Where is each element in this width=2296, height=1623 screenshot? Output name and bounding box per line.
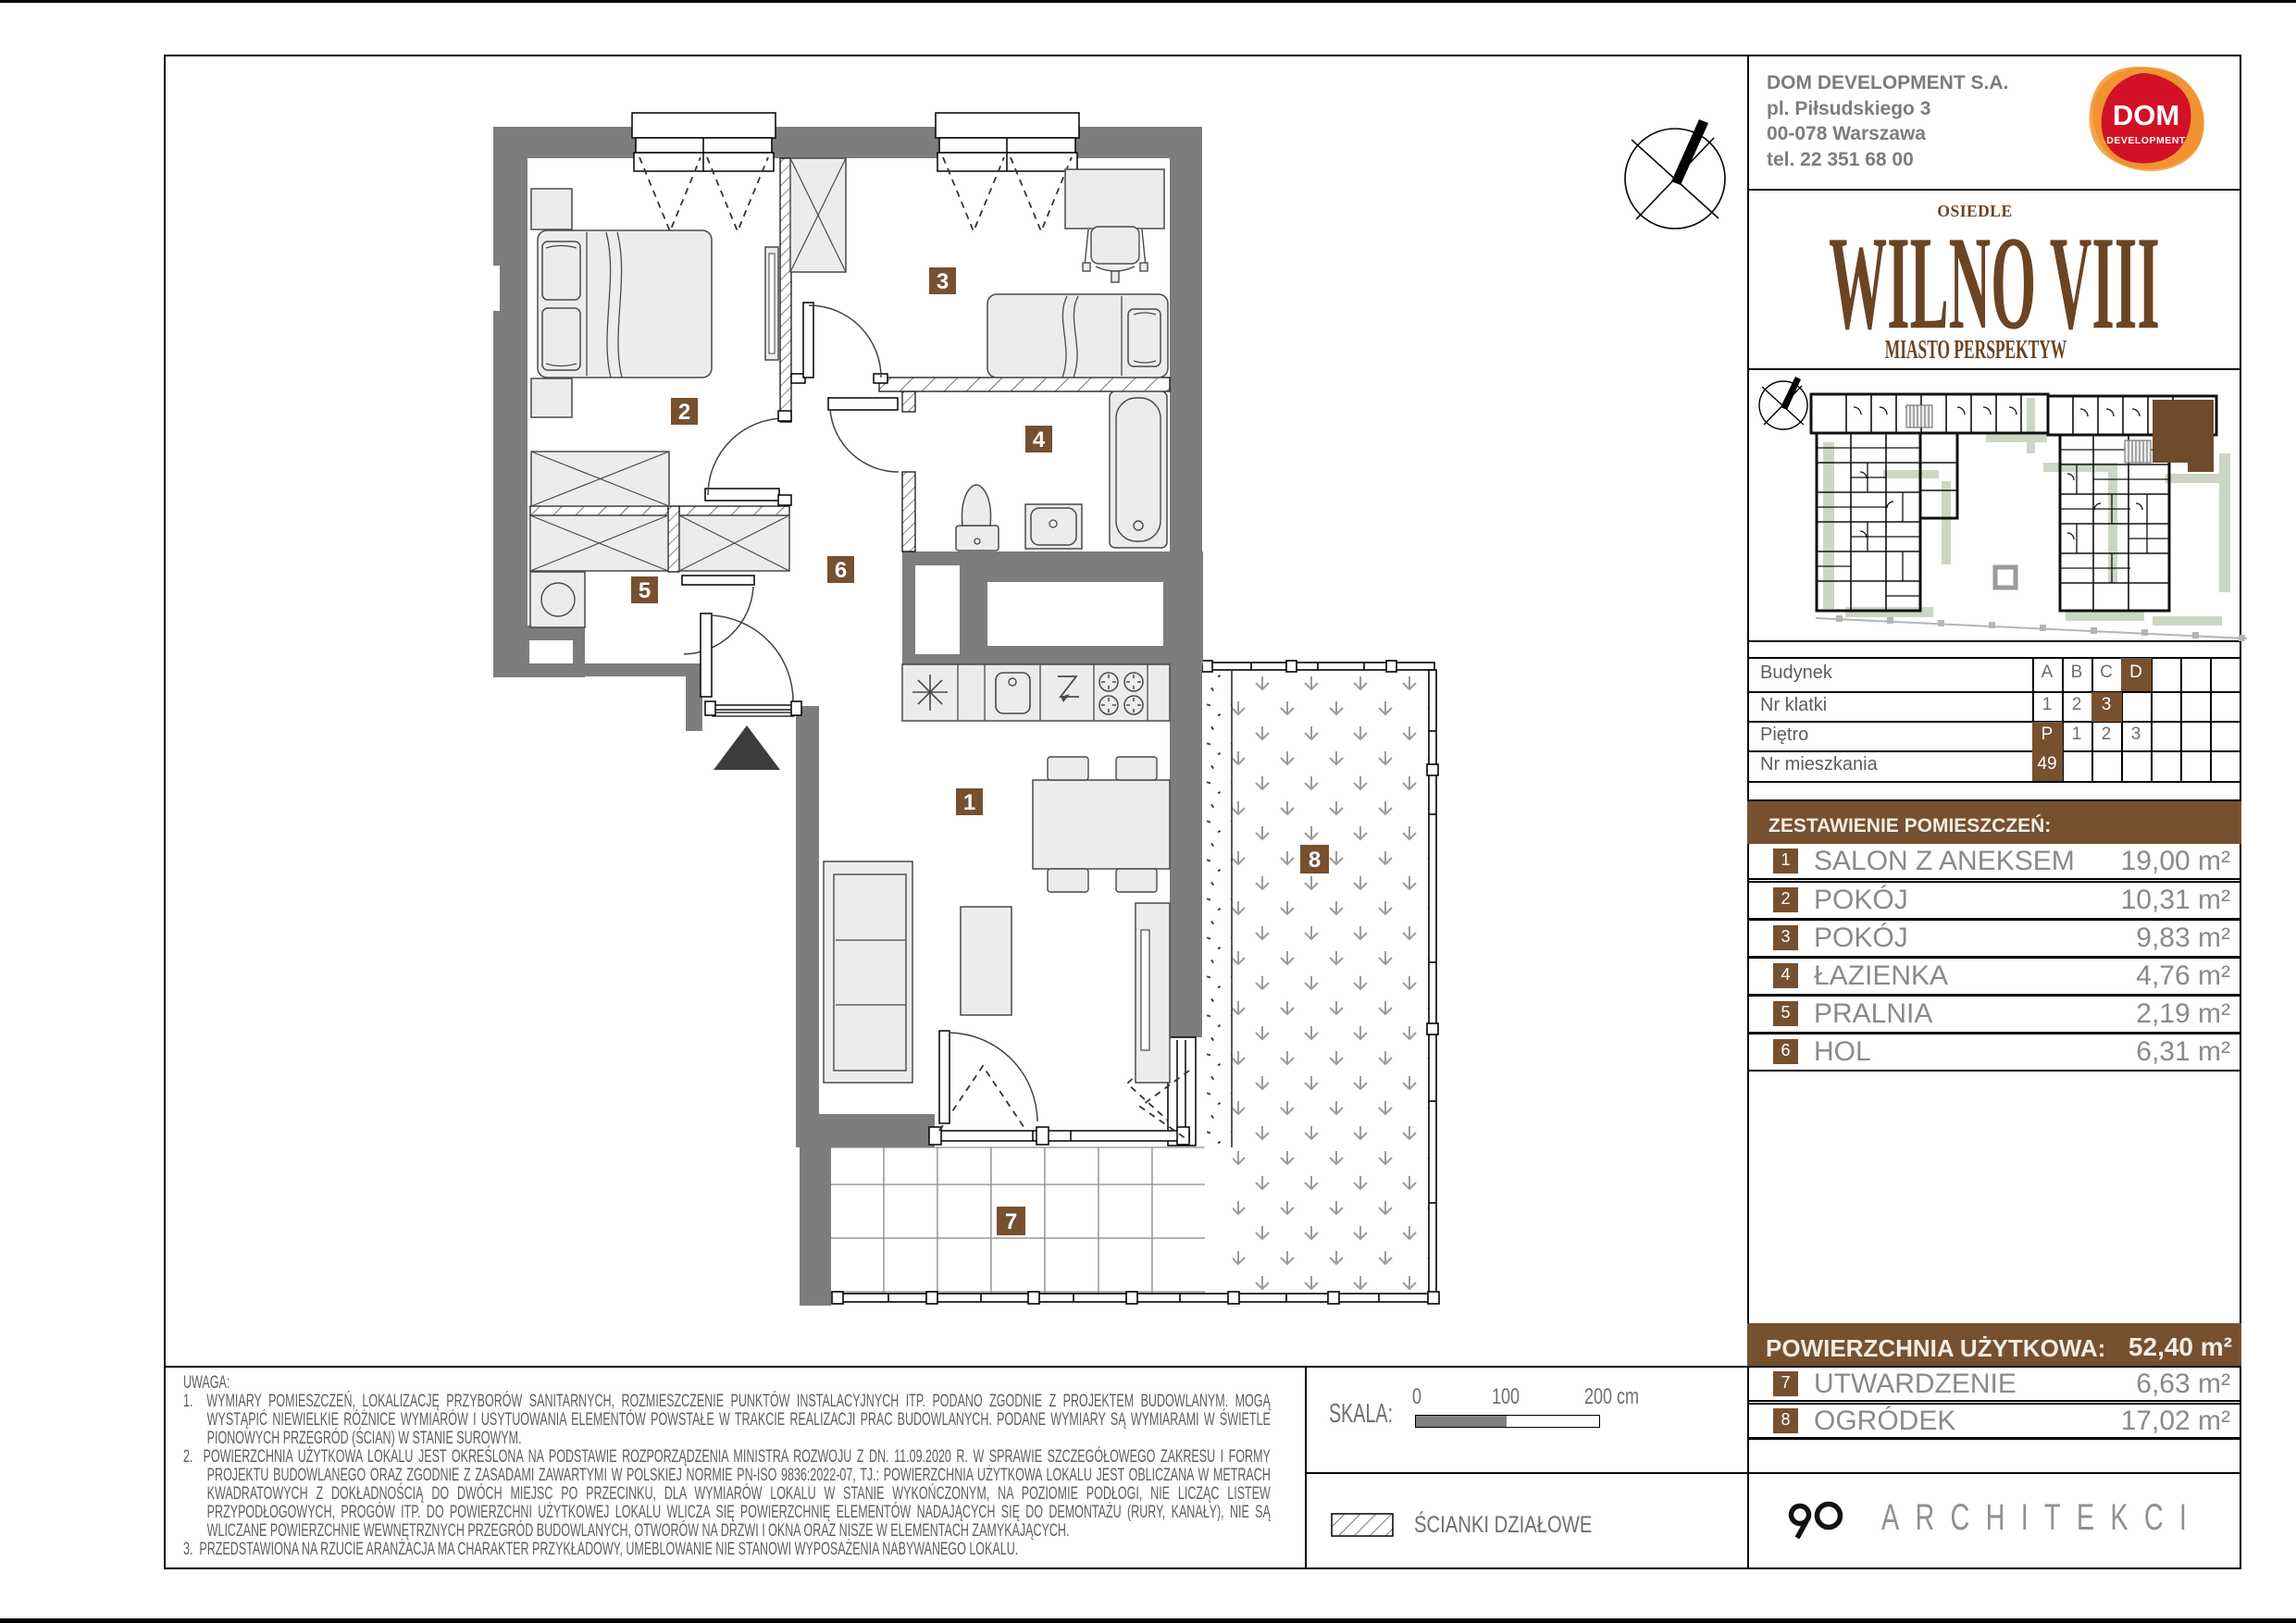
svg-text:1: 1 — [963, 790, 975, 815]
svg-text:8: 8 — [1309, 848, 1321, 873]
svg-text:5: 5 — [639, 578, 651, 603]
svg-text:6: 6 — [835, 558, 847, 583]
svg-text:4: 4 — [1033, 427, 1046, 452]
svg-text:3: 3 — [937, 269, 949, 294]
svg-text:7: 7 — [1005, 1209, 1017, 1234]
svg-text:ARCHITEKCI: ARCHITEKCI — [1881, 1496, 2203, 1538]
svg-text:2: 2 — [678, 400, 690, 425]
